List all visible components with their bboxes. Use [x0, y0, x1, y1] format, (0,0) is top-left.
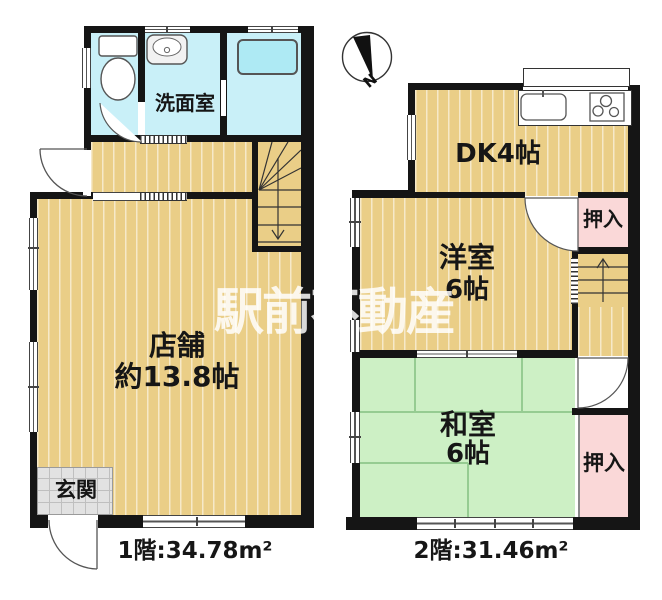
floor1-area-label: 1階:34.78m² — [95, 539, 295, 564]
hallway-floor — [91, 142, 252, 192]
shop-size-label: 約13.8帖 — [77, 362, 277, 393]
bathtub-icon — [237, 39, 298, 75]
toilet-icon — [95, 33, 141, 105]
window — [143, 515, 245, 528]
entrance-label: 玄関 — [41, 479, 111, 502]
floor2-area-label: 2階:31.46m² — [391, 539, 591, 564]
closet-upper-label: 押入 — [576, 208, 630, 230]
compass-icon: N — [341, 31, 395, 89]
kitchen-fixtures — [518, 90, 630, 124]
stove-icon — [590, 93, 624, 121]
western-room-label: 洋室 — [387, 243, 547, 274]
entrance-door-arc — [44, 513, 102, 575]
watermark: 駅前不動産 — [214, 272, 454, 344]
stairs-down-icon — [258, 142, 301, 246]
japanese-room-label: 和室 — [388, 410, 548, 441]
sink-icon — [146, 34, 188, 66]
window — [29, 218, 38, 290]
kitchen-sink-icon — [521, 94, 566, 120]
japanese-room-size-label: 6帖 — [388, 440, 548, 469]
window — [407, 115, 416, 160]
stairs-up-icon — [578, 254, 628, 307]
side-door-arc — [36, 144, 92, 202]
window — [248, 26, 298, 33]
stair-rail — [571, 258, 578, 304]
sliding-door-track — [140, 192, 187, 201]
washroom-label: 洗面室 — [141, 92, 229, 114]
hallway2-floor — [578, 307, 628, 356]
room-door-arc — [574, 352, 632, 414]
kitchen-counter-ledge — [523, 68, 630, 87]
dk-label: DK4帖 — [418, 140, 578, 169]
closet-lower-label: 押入 — [578, 452, 630, 475]
floorplan-canvas: 洗面室 店舗 約13.8帖 玄関 1階:34.78m² N — [0, 0, 662, 600]
window — [82, 48, 91, 88]
